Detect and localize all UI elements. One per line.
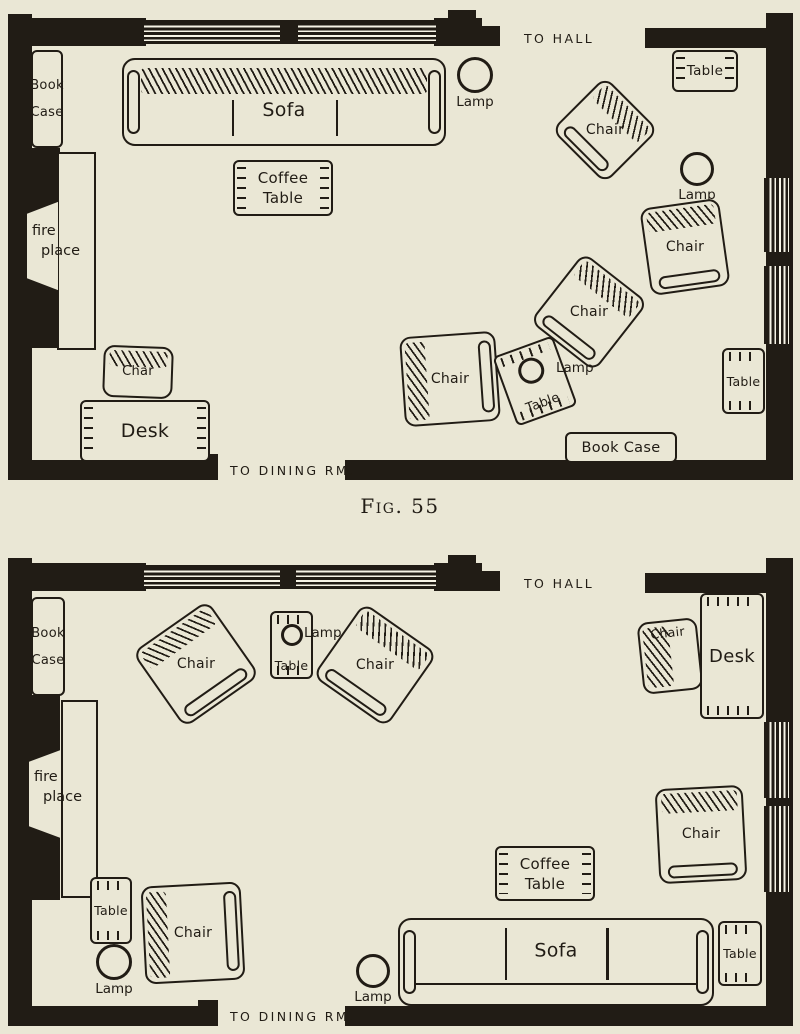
label-stack: Table	[724, 350, 763, 412]
fireplace-label: fireplace	[32, 222, 102, 261]
side-table: Table	[90, 877, 132, 944]
label: Lamp	[445, 94, 505, 110]
label: fire	[32, 222, 102, 242]
wall-segment	[8, 460, 218, 480]
label: Sofa	[400, 909, 712, 993]
label: Chair	[659, 789, 743, 880]
label: Table	[94, 903, 128, 918]
label: Char	[105, 348, 171, 396]
wall-segment	[8, 563, 146, 591]
label: Coffee	[520, 855, 570, 873]
armchair: Chair	[141, 881, 246, 984]
door-route-label: TO DINING RM.	[230, 1009, 390, 1024]
label-stack: BookCase	[33, 52, 61, 146]
armchair: Chair	[655, 785, 748, 884]
wall-segment	[8, 18, 146, 46]
armchair: Chair	[132, 600, 260, 728]
window	[764, 722, 792, 798]
lamp-circle	[96, 944, 132, 980]
wall-segment	[468, 26, 500, 46]
door-route-label: TO DINING RM.	[230, 463, 390, 478]
desk-chair: Chair	[636, 617, 703, 695]
book-page-scan: BookCaseSofaCoffeeTableLampTableChairLam…	[0, 0, 800, 1034]
label: fire	[34, 768, 104, 788]
annotation-label: Lamp	[556, 360, 616, 376]
label: Chair	[145, 886, 241, 980]
label: Table	[512, 386, 574, 422]
label: Sofa	[124, 69, 444, 153]
wall-segment	[278, 20, 300, 44]
armchair: Chair	[639, 198, 730, 296]
label: Book	[30, 78, 64, 93]
label: Book Case	[582, 440, 661, 456]
window	[298, 20, 436, 44]
label-stack: Book Case	[567, 434, 675, 461]
label: Book	[31, 626, 65, 641]
annotation-label: Lamp	[304, 625, 364, 641]
window	[144, 565, 280, 589]
sofa: Sofa	[398, 918, 714, 1006]
armchair: Chair	[551, 76, 658, 183]
label: Desk	[121, 420, 169, 442]
side-table: Table	[722, 348, 765, 414]
wall-segment	[645, 28, 766, 48]
coffee-table: CoffeeTable	[495, 846, 595, 901]
label: place	[43, 788, 104, 808]
wall-segment	[8, 1006, 218, 1026]
lamp-circle	[680, 152, 714, 186]
armchair: Chair	[312, 602, 437, 727]
door-route-label: TO HALL	[524, 31, 644, 46]
wall-segment	[345, 1006, 793, 1026]
wall-segment	[278, 565, 298, 589]
label: Lamp	[84, 981, 144, 997]
label-stack: Table	[674, 52, 736, 90]
window	[144, 20, 280, 44]
door-route-label: TO HALL	[524, 576, 644, 591]
lamp-circle	[281, 624, 303, 646]
desk: Desk	[80, 400, 210, 462]
wall-segment	[468, 571, 500, 591]
label: place	[41, 242, 102, 262]
label-stack: BookCase	[33, 599, 63, 694]
window	[296, 565, 436, 589]
label: Chair	[550, 270, 628, 354]
label: Table	[525, 875, 565, 893]
wall-segment	[345, 460, 793, 480]
label: Case	[32, 653, 65, 668]
wall-segment	[448, 555, 476, 565]
label: Chair	[404, 336, 496, 422]
label: Chair	[569, 94, 641, 166]
armchair: Chair	[399, 331, 501, 427]
coffee-table: CoffeeTable	[233, 160, 333, 216]
bookcase: BookCase	[31, 597, 65, 696]
label-stack: Table	[720, 923, 760, 984]
side-table: Table	[672, 50, 738, 92]
window	[764, 178, 792, 252]
label-stack: Table	[92, 879, 130, 942]
lamp-circle	[457, 57, 493, 93]
label: Table	[727, 374, 761, 389]
window	[764, 266, 792, 344]
label: Chair	[639, 622, 696, 644]
tick-marks	[277, 615, 306, 624]
label-stack: CoffeeTable	[235, 162, 331, 214]
side-table: Table	[718, 921, 762, 986]
lamp-circle	[356, 954, 390, 988]
label: Lamp	[343, 989, 403, 1005]
label-stack: CoffeeTable	[497, 848, 593, 899]
lamp-table: Table	[270, 611, 313, 679]
sofa: Sofa	[122, 58, 446, 146]
label: Table	[263, 189, 303, 207]
wall-segment	[448, 10, 476, 20]
desk-chair: Char	[102, 345, 174, 399]
label-stack: Desk	[82, 402, 208, 460]
label: Case	[31, 105, 64, 120]
label: Table	[687, 63, 723, 79]
fireplace-label: fireplace	[34, 768, 104, 807]
desk: Desk	[700, 593, 764, 719]
window	[764, 806, 792, 892]
figure-caption: Fig. 55	[0, 494, 800, 518]
label: Desk	[709, 646, 755, 667]
bookcase: Book Case	[565, 432, 677, 463]
label: Table	[272, 658, 311, 674]
label: Chair	[647, 205, 723, 289]
bookcase: BookCase	[31, 50, 63, 148]
label: Table	[723, 946, 757, 961]
label: Chair	[152, 620, 240, 708]
label: Coffee	[258, 169, 308, 187]
wall-segment	[198, 1000, 218, 1008]
wall-segment	[645, 573, 766, 593]
label-stack: Desk	[702, 595, 762, 717]
